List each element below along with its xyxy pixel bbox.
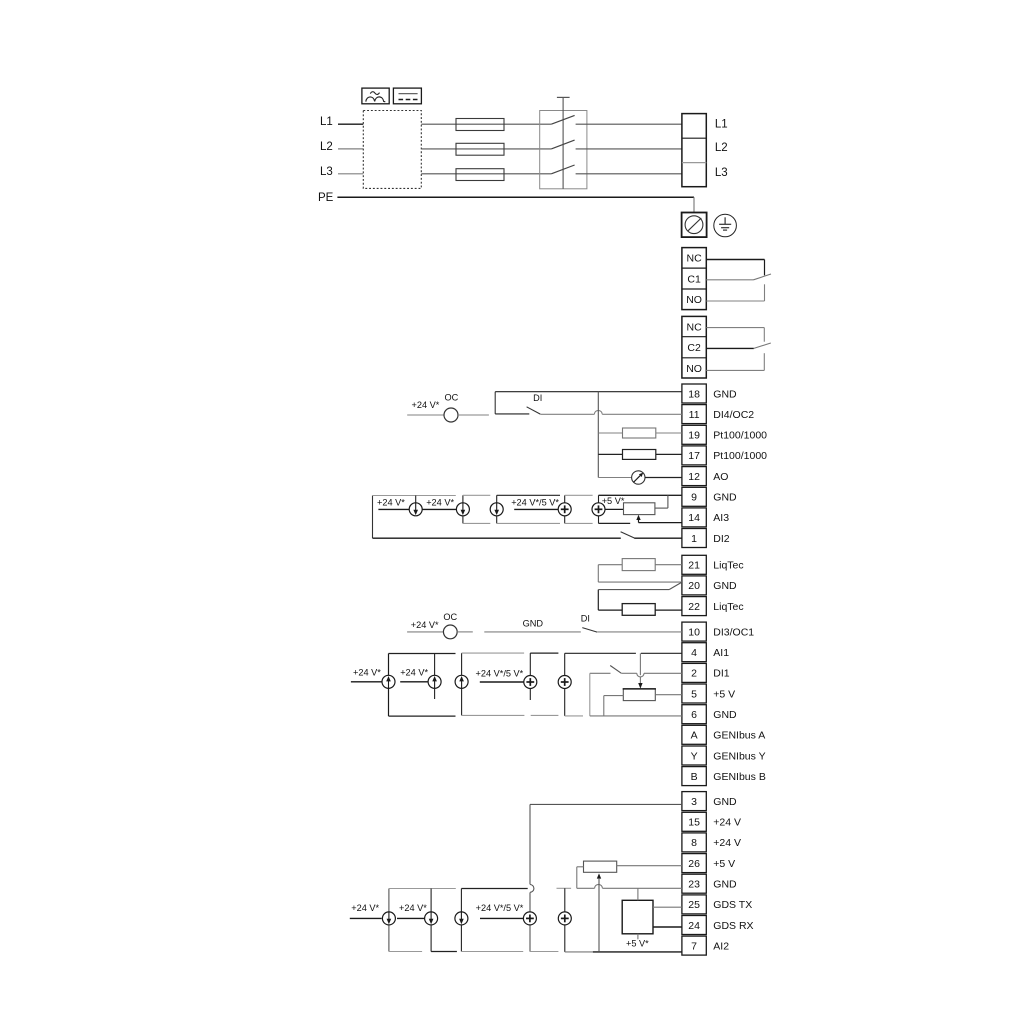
svg-text:GENIbus B: GENIbus B bbox=[713, 771, 766, 783]
svg-text:24: 24 bbox=[688, 920, 700, 932]
svg-text:DI2: DI2 bbox=[713, 533, 730, 545]
svg-text:NO: NO bbox=[686, 363, 702, 375]
svg-text:GND: GND bbox=[713, 580, 737, 592]
svg-text:GDS RX: GDS RX bbox=[713, 920, 753, 932]
svg-text:GND: GND bbox=[523, 618, 544, 628]
svg-text:Pt100/1000: Pt100/1000 bbox=[713, 450, 767, 462]
svg-text:18: 18 bbox=[688, 388, 700, 400]
svg-text:Pt100/1000: Pt100/1000 bbox=[713, 430, 767, 442]
svg-text:LiqTec: LiqTec bbox=[713, 560, 743, 572]
svg-text:6: 6 bbox=[691, 709, 697, 721]
svg-text:GND: GND bbox=[713, 388, 737, 400]
svg-text:B: B bbox=[691, 771, 698, 783]
svg-text:+24 V: +24 V bbox=[713, 817, 741, 829]
svg-text:C2: C2 bbox=[687, 342, 701, 354]
svg-text:L1: L1 bbox=[715, 119, 728, 131]
svg-text:GDS TX: GDS TX bbox=[713, 899, 752, 911]
svg-text:L3: L3 bbox=[320, 166, 333, 178]
svg-text:GND: GND bbox=[713, 879, 737, 891]
svg-text:8: 8 bbox=[691, 837, 697, 849]
svg-text:GND: GND bbox=[713, 492, 737, 504]
svg-text:+24 V*: +24 V* bbox=[351, 903, 379, 913]
svg-text:L2: L2 bbox=[715, 142, 728, 154]
svg-text:26: 26 bbox=[688, 858, 700, 870]
svg-text:20: 20 bbox=[688, 580, 700, 592]
svg-text:AI3: AI3 bbox=[713, 512, 729, 524]
svg-text:21: 21 bbox=[688, 560, 700, 572]
svg-text:17: 17 bbox=[688, 450, 700, 462]
svg-text:+24 V*: +24 V* bbox=[412, 400, 440, 410]
svg-text:+24 V*: +24 V* bbox=[426, 497, 454, 507]
svg-text:7: 7 bbox=[691, 940, 697, 952]
svg-text:DI1: DI1 bbox=[713, 668, 730, 680]
svg-text:L3: L3 bbox=[715, 167, 728, 179]
svg-text:12: 12 bbox=[688, 471, 700, 483]
svg-text:DI: DI bbox=[533, 393, 542, 403]
svg-text:OC: OC bbox=[443, 612, 457, 622]
svg-text:11: 11 bbox=[689, 409, 700, 421]
svg-text:22: 22 bbox=[688, 601, 700, 613]
svg-text:23: 23 bbox=[688, 879, 700, 891]
svg-text:AI1: AI1 bbox=[713, 647, 729, 659]
svg-text:C1: C1 bbox=[687, 273, 701, 285]
svg-text:DI3/OC1: DI3/OC1 bbox=[713, 626, 754, 638]
svg-text:DI: DI bbox=[581, 614, 590, 624]
svg-text:+24 V*: +24 V* bbox=[411, 620, 439, 630]
svg-text:GENIbus A: GENIbus A bbox=[713, 730, 765, 742]
svg-text:+5 V: +5 V bbox=[713, 688, 735, 700]
svg-text:GND: GND bbox=[713, 709, 737, 721]
svg-text:AI2: AI2 bbox=[713, 940, 729, 952]
svg-text:1: 1 bbox=[691, 533, 697, 545]
svg-text:NC: NC bbox=[687, 321, 703, 333]
svg-text:+24 V*/5 V*: +24 V*/5 V* bbox=[476, 668, 524, 678]
svg-text:NC: NC bbox=[687, 253, 703, 265]
svg-text:GND: GND bbox=[713, 796, 737, 808]
svg-text:GENIbus Y: GENIbus Y bbox=[713, 750, 765, 762]
svg-text:9: 9 bbox=[691, 492, 697, 504]
svg-text:LiqTec: LiqTec bbox=[713, 601, 743, 613]
svg-text:+24 V*/5 V*: +24 V*/5 V* bbox=[476, 903, 524, 913]
svg-text:+5 V: +5 V bbox=[713, 858, 735, 870]
svg-text:DI4/OC2: DI4/OC2 bbox=[713, 409, 754, 421]
svg-text:+24 V*: +24 V* bbox=[353, 668, 381, 678]
svg-text:3: 3 bbox=[691, 796, 697, 808]
svg-text:19: 19 bbox=[688, 430, 700, 442]
svg-text:10: 10 bbox=[688, 626, 700, 638]
svg-text:+24 V*/5 V*: +24 V*/5 V* bbox=[511, 497, 559, 507]
svg-text:L2: L2 bbox=[320, 141, 333, 153]
svg-text:NO: NO bbox=[686, 294, 702, 306]
svg-text:OC: OC bbox=[445, 393, 459, 403]
svg-text:Y: Y bbox=[691, 750, 698, 762]
svg-text:PE: PE bbox=[318, 192, 334, 204]
svg-text:15: 15 bbox=[688, 817, 700, 829]
svg-text:5: 5 bbox=[691, 688, 697, 700]
svg-text:AO: AO bbox=[713, 471, 728, 483]
svg-text:+5 V*: +5 V* bbox=[626, 939, 649, 949]
svg-text:+24 V*: +24 V* bbox=[377, 497, 405, 507]
svg-text:14: 14 bbox=[688, 512, 700, 524]
svg-text:25: 25 bbox=[688, 899, 700, 911]
svg-text:A: A bbox=[691, 730, 698, 742]
svg-text:+5 V*: +5 V* bbox=[602, 496, 625, 506]
svg-text:+24 V: +24 V bbox=[713, 837, 741, 849]
svg-text:L1: L1 bbox=[320, 116, 333, 128]
svg-text:4: 4 bbox=[691, 647, 697, 659]
svg-text:+24 V*: +24 V* bbox=[400, 668, 428, 678]
svg-text:2: 2 bbox=[691, 668, 697, 680]
svg-text:+24 V*: +24 V* bbox=[399, 903, 427, 913]
